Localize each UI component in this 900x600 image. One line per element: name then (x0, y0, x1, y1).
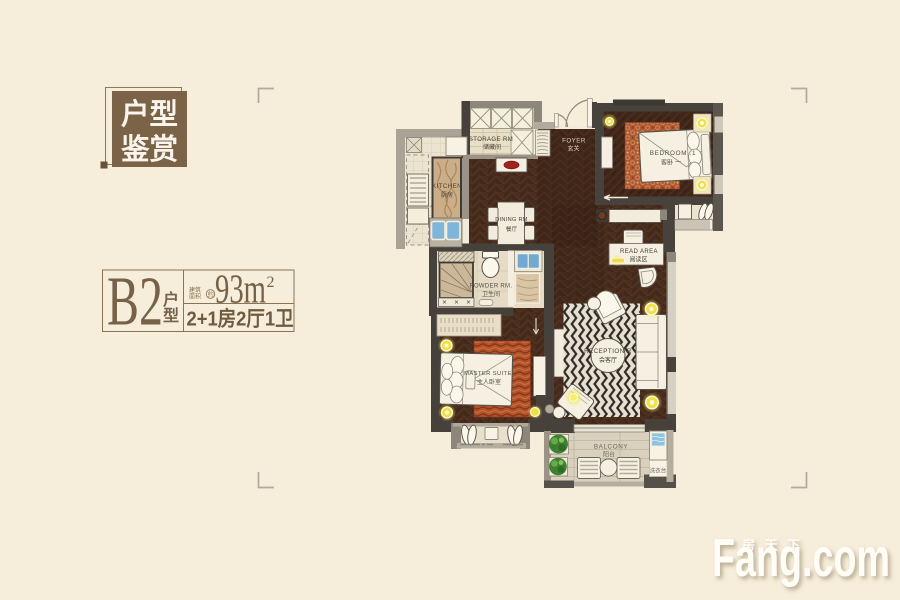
svg-text:卫生间: 卫生间 (482, 290, 500, 298)
svg-text:BEDROOM .1: BEDROOM .1 (650, 150, 697, 157)
svg-text:鉴赏: 鉴赏 (120, 132, 178, 166)
svg-text:2: 2 (267, 274, 275, 291)
svg-text:MASTER SUITE: MASTER SUITE (464, 371, 512, 377)
svg-text:POWDER RM.: POWDER RM. (470, 284, 513, 290)
svg-text:建筑: 建筑 (189, 286, 201, 294)
svg-text:BALCONY: BALCONY (594, 444, 628, 451)
svg-text:面积: 面积 (189, 293, 201, 301)
svg-text:客卧 一: 客卧 一 (661, 159, 681, 167)
svg-text:会客厅: 会客厅 (599, 356, 617, 364)
svg-text:户: 户 (163, 290, 179, 309)
svg-text:2+1房2厅1卫: 2+1房2厅1卫 (187, 307, 294, 331)
svg-text:餐厅: 餐厅 (506, 225, 518, 233)
svg-text:93m: 93m (215, 266, 266, 312)
svg-text:型: 型 (163, 307, 179, 325)
svg-text:约: 约 (208, 290, 214, 298)
svg-text:厨房: 厨房 (441, 191, 453, 199)
svg-text:FOYER: FOYER (562, 138, 586, 145)
svg-text:READ AREA: READ AREA (620, 249, 658, 255)
svg-text:洗衣台: 洗衣台 (650, 467, 667, 475)
svg-text:STORAGE RM: STORAGE RM (469, 137, 513, 143)
svg-text:KITCHEN: KITCHEN (432, 184, 462, 190)
svg-text:玄关: 玄关 (567, 145, 579, 153)
svg-text:阳台: 阳台 (603, 451, 615, 459)
svg-text:Fang.com: Fang.com (712, 528, 890, 588)
svg-text:主人卧室: 主人卧室 (477, 378, 501, 386)
svg-text:储藏间: 储藏间 (483, 143, 501, 151)
svg-text:户型: 户型 (121, 97, 178, 131)
svg-text:阅读区: 阅读区 (629, 256, 647, 264)
svg-text:DINING RM: DINING RM (495, 217, 528, 223)
svg-text:RECEPTION R: RECEPTION R (584, 348, 632, 355)
svg-text:B2: B2 (107, 264, 163, 341)
